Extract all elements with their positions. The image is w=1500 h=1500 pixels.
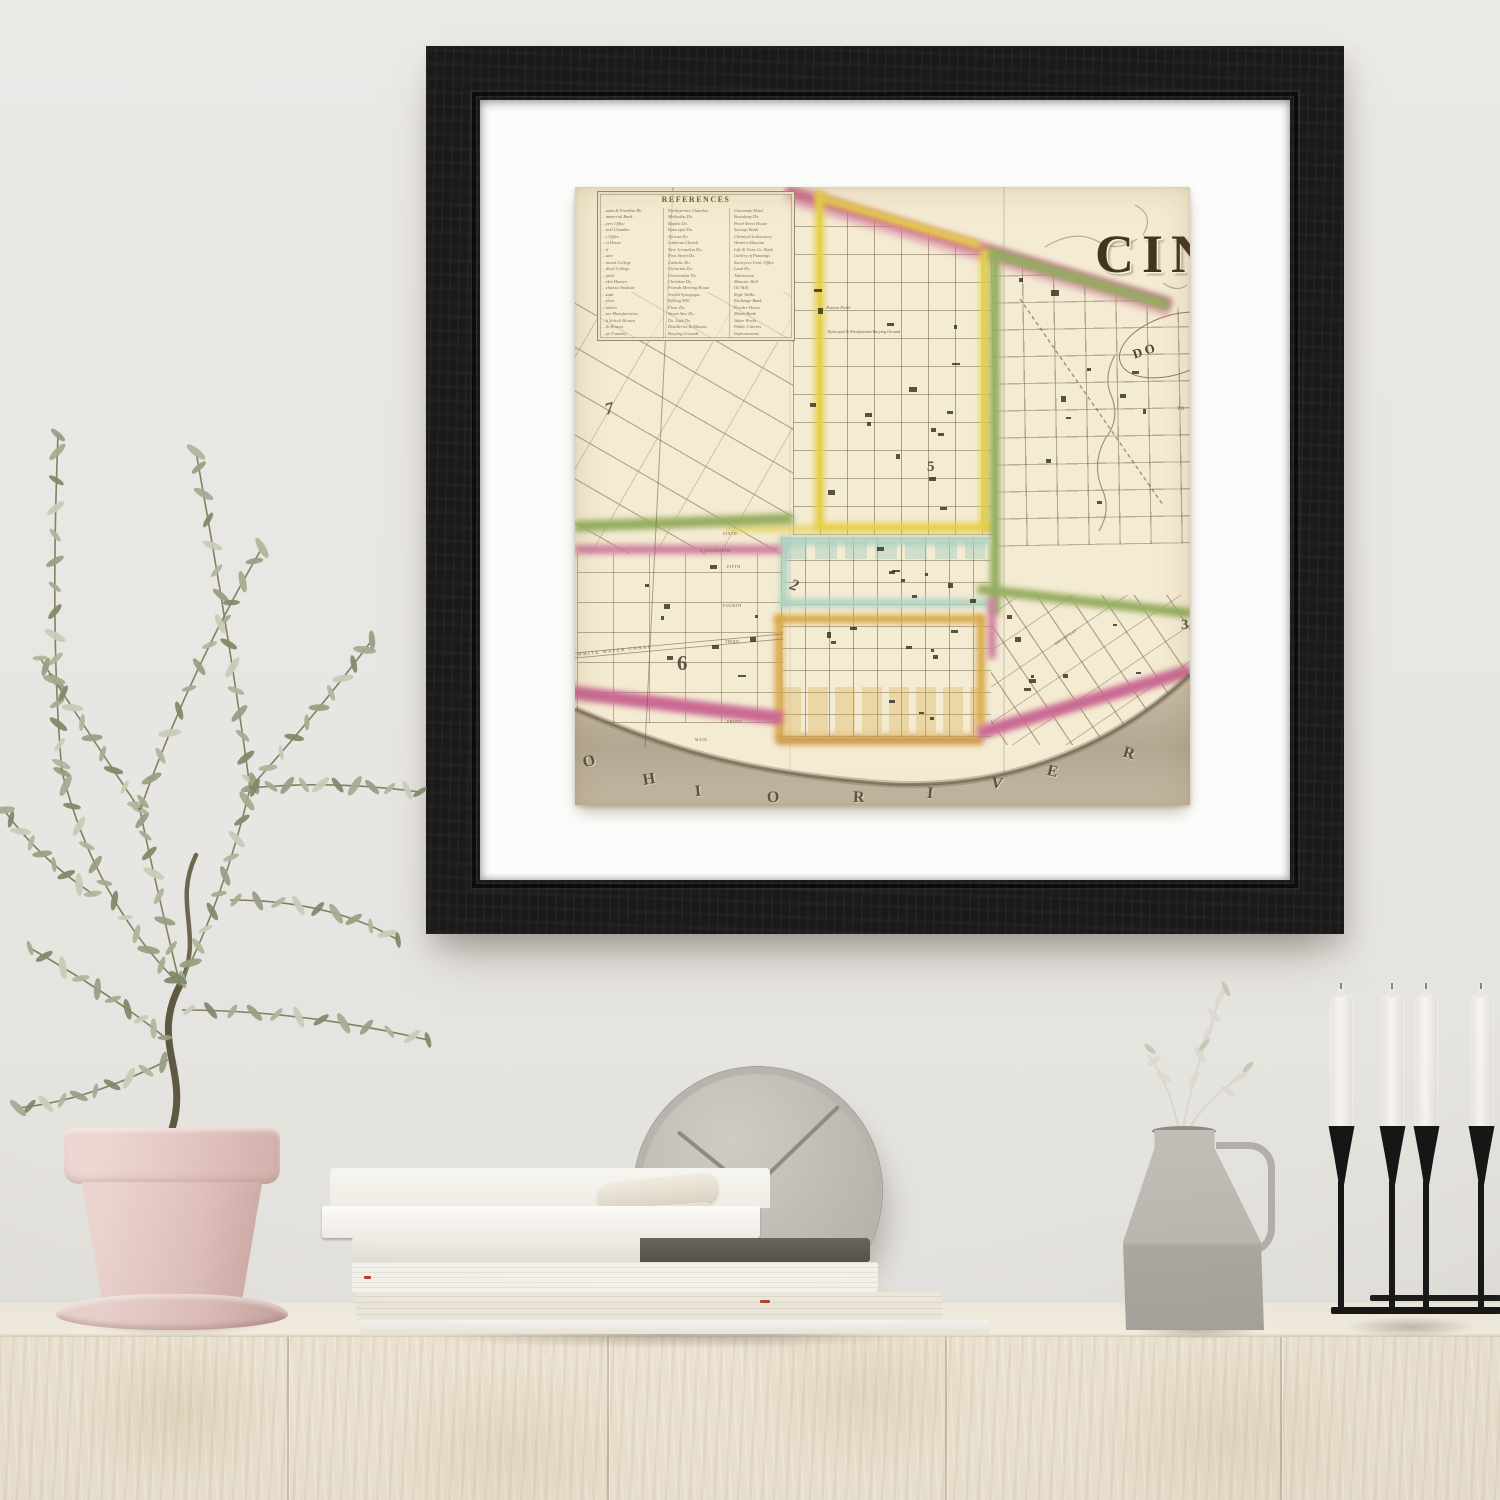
legend-title: REFERENCES [598, 195, 794, 204]
taper-candle [1331, 997, 1352, 1127]
book [322, 1206, 760, 1238]
street-label: FOURTH [723, 604, 742, 608]
pot-body [76, 1182, 268, 1306]
book [356, 1292, 942, 1320]
pot-saucer [56, 1294, 288, 1330]
styled-interior-photo: REFERENCES …ands & Franklin Bk. …mmercia… [0, 0, 1500, 1500]
district-number: 5 [927, 459, 935, 476]
river-letter: V [990, 774, 1005, 794]
jug-vase [1120, 975, 1280, 1333]
street-label: THIRD [725, 640, 740, 644]
sideboard-door-seam [607, 1337, 609, 1500]
candle-stem [1478, 1181, 1484, 1307]
candle-cup [1468, 1126, 1495, 1184]
taper-candle [1382, 997, 1403, 1127]
wood-grain [0, 1337, 1500, 1500]
street-label: SIXTH [723, 532, 737, 536]
district-number: 3 [1181, 617, 1189, 634]
candle-stem [1423, 1181, 1429, 1307]
plant-pot [56, 1128, 296, 1332]
river-letter: O [767, 789, 780, 805]
candle-stand [1310, 985, 1500, 1330]
candle-cup [1413, 1126, 1440, 1184]
olive-plant [0, 340, 480, 1160]
sideboard-front [0, 1337, 1500, 1500]
sideboard-door-seam [1280, 1337, 1282, 1500]
map-print: REFERENCES …ands & Franklin Bk. …mmercia… [575, 187, 1190, 805]
street-label: FIFTH [727, 565, 741, 569]
potters-field-label: Potters Field [807, 305, 869, 310]
legend-column-1: …ands & Franklin Bk. …mmercial Bank …yer… [602, 208, 659, 338]
book-dark [640, 1238, 870, 1262]
candle-stem [1338, 1181, 1344, 1307]
book-red-mark [364, 1276, 371, 1279]
taper-candle [1471, 997, 1492, 1127]
pot-rim [64, 1128, 280, 1184]
candle-stand-bar [1331, 1307, 1500, 1314]
legend-column-3: Cincinnati Hotel Broadway Do. Pearl Stre… [729, 208, 791, 338]
burying-ground-label: Episcopal & Presbyterian Burying Ground [827, 329, 901, 334]
candle-stem [1389, 1181, 1395, 1307]
street-label: FRONT [727, 720, 742, 724]
taper-candle [1416, 997, 1437, 1127]
district-number: 6 [677, 651, 688, 676]
street-label: LONGWORTH [701, 549, 731, 553]
legend-column-2: Presbyterian Churches Methodist Do. Bapt… [663, 208, 725, 338]
book [352, 1262, 878, 1292]
map-legend: REFERENCES …ands & Franklin Bk. …mmercia… [597, 191, 795, 341]
sideboard-door-seam [287, 1337, 289, 1500]
street-label: MAIN [695, 738, 708, 742]
candle-cup [1328, 1126, 1355, 1184]
candle-cup [1379, 1126, 1406, 1184]
picture-frame: REFERENCES …ands & Franklin Bk. …mmercia… [426, 46, 1344, 934]
river-letter: R [853, 789, 865, 805]
book [360, 1320, 990, 1334]
mat-board: REFERENCES …ands & Franklin Bk. …mmercia… [480, 100, 1290, 880]
sideboard-door-seam [945, 1337, 947, 1500]
book-red-mark [760, 1300, 770, 1303]
map-title: CIN [1095, 223, 1190, 285]
edge-label: TO [1177, 407, 1185, 412]
dried-sprigs [1120, 975, 1280, 1140]
